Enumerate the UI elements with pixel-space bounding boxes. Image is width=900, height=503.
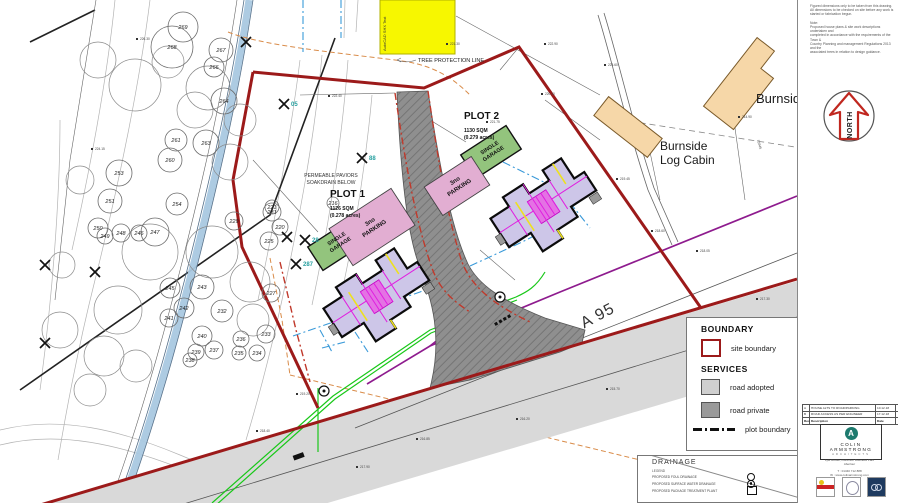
spot-level-marker <box>738 116 740 118</box>
spot-level-value: 214.90 <box>742 115 752 119</box>
spot-level-marker <box>696 250 698 252</box>
spot-level-marker <box>328 95 330 97</box>
tree-number: 246 <box>133 231 144 237</box>
road-private-swatch <box>701 402 720 418</box>
architect-logo: A <box>845 427 858 440</box>
tree-number: 220 <box>274 225 285 231</box>
legend-road-private-row: road private <box>701 402 797 418</box>
revision-cell: 10.12.18 <box>876 405 896 411</box>
institute-logo <box>867 477 886 497</box>
legend-road-adopted-row: road adopted <box>701 379 797 395</box>
tree-number: 248 <box>115 231 126 237</box>
tree-number: 241 <box>163 316 173 322</box>
spot-level-marker <box>356 466 358 468</box>
tree-number: 269 <box>177 25 187 31</box>
firm-name: COLIN ARMSTRONG <box>821 442 881 452</box>
tree-number: 249 <box>99 234 109 240</box>
spot-level-value: 220.10 <box>545 92 555 96</box>
tree-number: 238 <box>184 358 195 364</box>
drainage-item: PROPOSED SURFACE WATER DRAINAGE <box>652 480 797 487</box>
plot1-label: PLOT 1 <box>330 189 365 200</box>
revision-cell: ROAD ACCESS AS PER ENGINEER <box>810 412 876 418</box>
plot1-acres: (0.278 acres) <box>330 213 361 219</box>
spot-level-value: 218.60 <box>655 229 665 233</box>
north-arrow: NORTH <box>821 88 877 144</box>
tree-number: 268 <box>166 45 177 51</box>
revision-cell: Rev <box>802 418 810 424</box>
spot-level-marker <box>516 418 518 420</box>
drainage-item-label: PROPOSED PACKAGE TREATMENT PLANT <box>652 489 747 493</box>
permeable-note-1: PERMEABLE PAVIORS <box>304 173 358 179</box>
revision-cell: HOUSE ALTS TO ROAD/PARKING <box>810 405 876 411</box>
note-line: associated trees in relation to design g… <box>810 50 896 54</box>
accreditation-logos <box>816 477 886 497</box>
tree-number: 236 <box>235 337 246 343</box>
revision-table: AHOUSE ALTS TO ROAD/PARKING10.12.18BROAD… <box>802 404 898 425</box>
plot-boundary-label: plot boundary <box>745 425 790 434</box>
road-adopted-swatch <box>701 379 720 395</box>
title-block: A COLIN ARMSTRONG ARCHITECTS <box>820 424 882 460</box>
tree-number: 235 <box>233 351 244 357</box>
tree-number: 266 <box>208 65 219 71</box>
legend-plot-boundary-row: plot boundary <box>693 425 797 434</box>
spot-level-marker <box>416 438 418 440</box>
tree-number: 233 <box>260 332 271 338</box>
spot-level-value: 218.40 <box>260 429 270 433</box>
site-plan-sheet: AutoCAD SHX Text 26926826726626426326126… <box>0 0 900 503</box>
spot-level-value: 219.20 <box>300 392 310 396</box>
spot-level-marker <box>136 38 138 40</box>
tree-number: 232 <box>216 309 226 315</box>
revision-cell: Date <box>876 418 896 424</box>
spot-level-marker <box>604 64 606 66</box>
tree-number: 221 <box>266 205 276 211</box>
note-line: Country Planning and management Regulati… <box>810 42 896 50</box>
revision-cell: B <box>802 412 810 418</box>
north-label: NORTH <box>847 111 854 138</box>
address-line-2: Aberlour <box>798 462 900 466</box>
tree-number: 225 <box>263 239 274 245</box>
revision-cell: A <box>802 405 810 411</box>
plot2-acres: (0.279 acres) <box>464 135 495 141</box>
firm-subtitle: ARCHITECTS <box>821 452 881 456</box>
removed-tree-number: 287 <box>303 262 314 268</box>
tree-number: 229 <box>228 219 238 225</box>
permeable-note-2: SOAKDRAIN BELOW <box>307 180 356 186</box>
tree-number: 254 <box>171 202 181 208</box>
legend-services-heading: SERVICES <box>701 364 797 374</box>
removed-tree-number: 28 <box>312 238 319 244</box>
legend-site-boundary-row: site boundary <box>701 339 797 357</box>
legend-boundary-heading: BOUNDARY <box>701 324 797 334</box>
spot-level-marker <box>296 393 298 395</box>
revision-row: BROAD ACCESS AS PER ENGINEER17.12.18 <box>802 412 898 419</box>
spot-level-value: 221.30 <box>450 42 460 46</box>
spot-level-marker <box>651 230 653 232</box>
spot-level-value: 226.30 <box>140 37 150 41</box>
spot-level-marker <box>544 43 546 45</box>
spot-level-marker <box>91 148 93 150</box>
spot-level-value: 216.85 <box>420 437 430 441</box>
tree-number: 247 <box>149 230 160 236</box>
legend-box: BOUNDARY site boundary SERVICES road ado… <box>686 317 798 451</box>
spot-level-marker <box>756 298 758 300</box>
spot-level-value: 219.45 <box>620 177 630 181</box>
spot-level-value: 224.15 <box>95 147 105 151</box>
spot-level-value: 218.05 <box>700 249 710 253</box>
spot-level-value: 222.90 <box>548 42 558 46</box>
tree-number: 227 <box>265 291 276 297</box>
site-boundary-label: site boundary <box>731 344 776 353</box>
site-boundary-swatch <box>701 339 721 357</box>
spot-level-value: 216.20 <box>520 417 530 421</box>
tree-number: 264 <box>218 99 228 105</box>
tree-number: 242 <box>178 306 188 312</box>
tree-number: 251 <box>104 199 114 205</box>
revision-row: AHOUSE ALTS TO ROAD/PARKING10.12.18 <box>802 405 898 412</box>
road-private-label: road private <box>730 406 770 415</box>
riba-logo <box>816 477 835 497</box>
spot-level-value: 217.90 <box>360 465 370 469</box>
note-line: completed in accordance with the require… <box>810 33 896 41</box>
tree-protection-label: TREE PROTECTION LINE <box>418 58 484 64</box>
removed-tree-number: 05 <box>291 102 298 108</box>
sheet-margin: Figured dimensions only to be taken from… <box>797 0 900 503</box>
plot2-label: PLOT 2 <box>464 111 499 122</box>
plot-boundary-swatch <box>693 428 735 431</box>
plot1-area: 1126 SQM <box>330 206 354 212</box>
tree-number: 234 <box>251 351 261 357</box>
drainage-circle-dot-symbol <box>747 480 755 488</box>
tree-number: 243 <box>196 285 207 291</box>
tree-number: 261 <box>170 138 180 144</box>
tree-number: 240 <box>196 334 207 340</box>
plot2-area: 1130 SQM <box>464 128 488 134</box>
spot-level-value: 217.30 <box>760 297 770 301</box>
spot-level-marker <box>256 430 258 432</box>
revision-cell: 17.12.18 <box>876 412 896 418</box>
burnside-cabin-label-1: Burnside <box>660 139 708 153</box>
road-adopted-label: road adopted <box>730 383 774 392</box>
shx-text-label: AutoCAD SHX Text <box>382 16 387 51</box>
removed-tree-number: 88 <box>369 156 376 162</box>
drainage-item-label: PROPOSED SURFACE WATER DRAINAGE <box>652 482 747 486</box>
note-line: Proposed house plans & site work descrip… <box>810 25 896 33</box>
revision-cell: Description <box>810 418 876 424</box>
seal-logo <box>842 477 861 497</box>
spot-level-marker <box>541 93 543 95</box>
drainage-box: DRAINAGE LEGEND PROPOSED FOUL DRAINAGEPR… <box>637 455 798 503</box>
spot-level-marker <box>446 43 448 45</box>
spot-level-marker <box>606 388 608 390</box>
drawing-notes: Figured dimensions only to be taken from… <box>810 4 896 54</box>
spot-level-value: 223.60 <box>608 63 618 67</box>
tree-number: 237 <box>208 348 219 354</box>
tree-number: 253 <box>113 171 124 177</box>
tree-number: 245 <box>164 286 175 292</box>
spot-level-value: 222.40 <box>332 94 342 98</box>
tree-number: 263 <box>200 141 211 147</box>
spot-level-marker <box>616 178 618 180</box>
firm-address: Lyle House, Fisherton Business Park Aber… <box>798 458 900 477</box>
tree-number: 267 <box>215 48 226 54</box>
burnside-cabin-label-2: Log Cabin <box>660 153 715 167</box>
tree-number: 260 <box>164 158 175 164</box>
spot-level-value: 215.70 <box>610 387 620 391</box>
